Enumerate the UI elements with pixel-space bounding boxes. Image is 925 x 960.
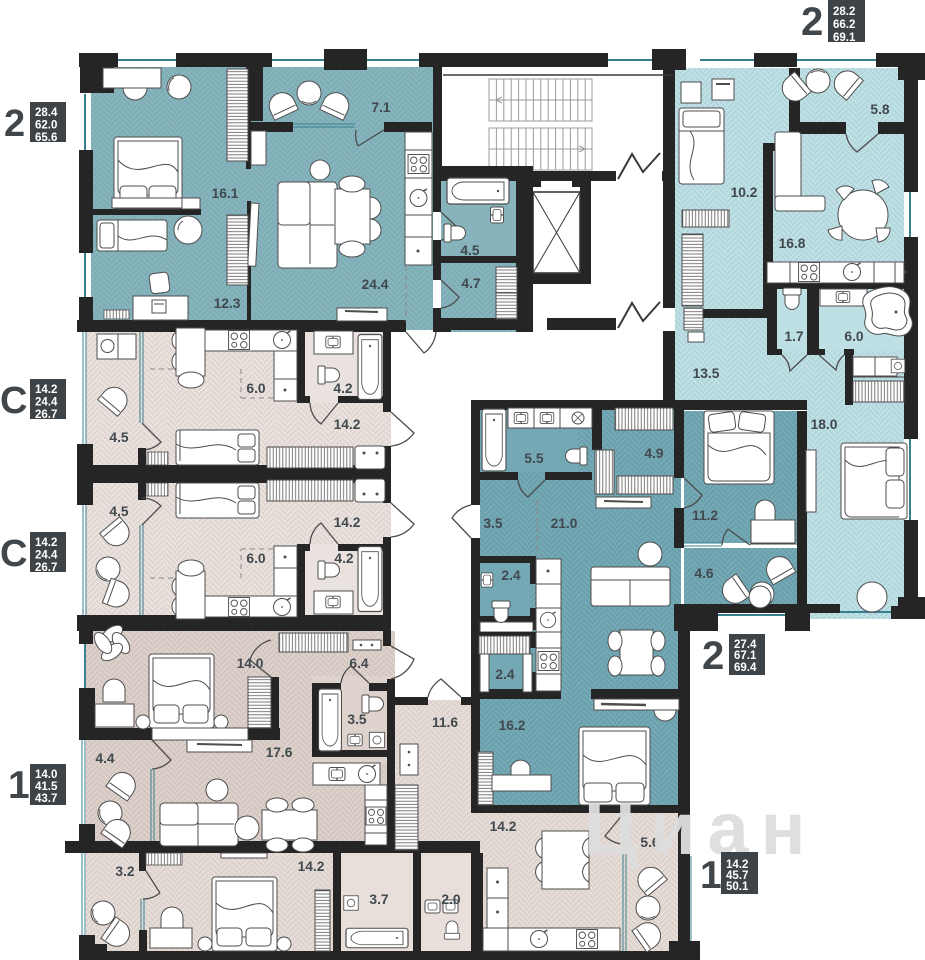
svg-text:2.0: 2.0 xyxy=(441,892,461,907)
svg-text:4.4: 4.4 xyxy=(95,751,115,766)
svg-text:69.4: 69.4 xyxy=(734,662,757,674)
svg-text:21.0: 21.0 xyxy=(551,516,578,531)
svg-text:14.2: 14.2 xyxy=(298,859,325,874)
svg-text:2: 2 xyxy=(4,103,25,145)
svg-text:6.4: 6.4 xyxy=(349,656,369,671)
svg-text:62.0: 62.0 xyxy=(35,120,57,132)
svg-text:5.5: 5.5 xyxy=(524,451,544,466)
svg-text:4.2: 4.2 xyxy=(333,381,353,396)
svg-text:6.0: 6.0 xyxy=(246,381,266,396)
svg-text:3.7: 3.7 xyxy=(369,892,389,907)
svg-text:18.0: 18.0 xyxy=(811,417,838,432)
svg-text:26.7: 26.7 xyxy=(35,562,57,574)
svg-text:14.0: 14.0 xyxy=(237,656,264,671)
svg-text:66.2: 66.2 xyxy=(833,19,855,31)
svg-text:16.2: 16.2 xyxy=(499,718,526,733)
svg-text:6.0: 6.0 xyxy=(246,551,266,566)
svg-text:24.4: 24.4 xyxy=(362,277,389,292)
svg-text:3.2: 3.2 xyxy=(115,864,135,879)
svg-text:24.4: 24.4 xyxy=(35,397,58,409)
svg-text:16.1: 16.1 xyxy=(212,186,239,201)
svg-text:4.7: 4.7 xyxy=(461,276,481,291)
svg-text:3.5: 3.5 xyxy=(347,712,367,727)
svg-text:28.2: 28.2 xyxy=(833,6,855,18)
svg-text:10.2: 10.2 xyxy=(731,185,758,200)
svg-text:17.6: 17.6 xyxy=(266,745,293,760)
svg-text:50.1: 50.1 xyxy=(726,881,749,893)
svg-text:2: 2 xyxy=(801,0,823,44)
svg-text:4.5: 4.5 xyxy=(460,243,480,258)
svg-text:6.0: 6.0 xyxy=(844,329,864,344)
svg-text:14.2: 14.2 xyxy=(35,537,57,549)
svg-text:2.4: 2.4 xyxy=(501,568,521,583)
svg-text:14.2: 14.2 xyxy=(334,515,361,530)
svg-text:2: 2 xyxy=(702,634,724,678)
svg-text:24.4: 24.4 xyxy=(35,550,58,562)
svg-text:4.5: 4.5 xyxy=(109,430,129,445)
svg-text:7.1: 7.1 xyxy=(371,100,391,115)
svg-text:13.5: 13.5 xyxy=(693,366,720,381)
svg-text:С: С xyxy=(0,533,27,575)
svg-text:1: 1 xyxy=(8,764,30,807)
svg-text:14.2: 14.2 xyxy=(334,417,361,432)
svg-text:11.2: 11.2 xyxy=(692,508,718,523)
svg-text:65.6: 65.6 xyxy=(35,132,57,144)
svg-text:67.1: 67.1 xyxy=(734,650,757,662)
svg-text:16.8: 16.8 xyxy=(779,236,806,251)
svg-text:14.2: 14.2 xyxy=(35,384,57,396)
svg-text:69.1: 69.1 xyxy=(833,32,856,44)
svg-text:1: 1 xyxy=(700,854,722,897)
svg-text:1.7: 1.7 xyxy=(784,329,804,344)
svg-text:5.8: 5.8 xyxy=(870,102,890,117)
svg-text:28.4: 28.4 xyxy=(35,107,58,119)
svg-text:С: С xyxy=(0,380,27,422)
svg-text:12.3: 12.3 xyxy=(214,296,241,311)
svg-text:43.7: 43.7 xyxy=(35,793,57,805)
svg-text:11.6: 11.6 xyxy=(432,715,458,730)
svg-text:4.2: 4.2 xyxy=(334,551,354,566)
svg-text:26.7: 26.7 xyxy=(35,409,57,421)
svg-text:14.2: 14.2 xyxy=(490,819,517,834)
svg-text:4.6: 4.6 xyxy=(694,566,714,581)
svg-text:41.5: 41.5 xyxy=(35,781,58,793)
svg-text:2.4: 2.4 xyxy=(495,667,515,682)
svg-text:4.5: 4.5 xyxy=(109,504,129,519)
svg-text:4.9: 4.9 xyxy=(644,446,664,461)
svg-text:3.5: 3.5 xyxy=(483,516,503,531)
svg-text:14.0: 14.0 xyxy=(35,769,57,781)
